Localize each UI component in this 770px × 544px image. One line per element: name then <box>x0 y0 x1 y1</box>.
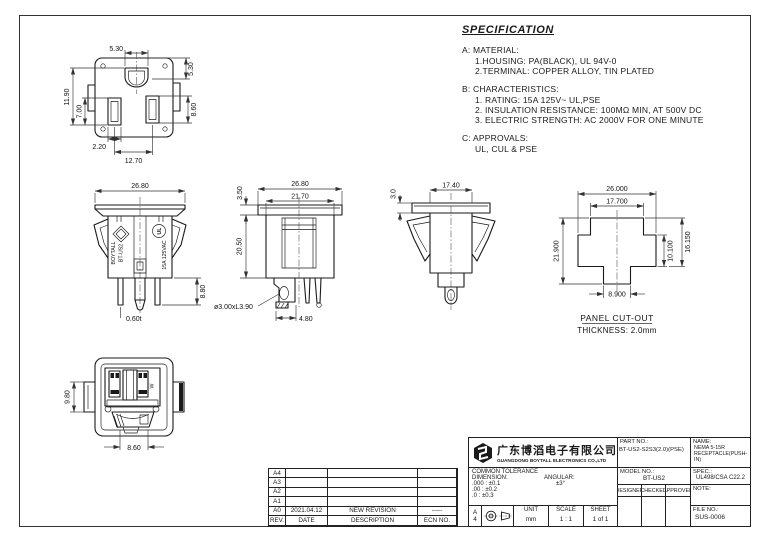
scale-cell: SCALE 1 : 1 <box>548 505 584 527</box>
rev-header: DESCRIPTION <box>328 516 418 526</box>
dim-label: ø3.00xL3.90 <box>214 304 253 311</box>
dim-label: 17.40 <box>442 183 460 190</box>
wiring-mark-w: W <box>150 383 156 388</box>
name-label: NAME: <box>691 438 750 445</box>
rev-cell <box>418 469 457 478</box>
dim-label: 3.50 <box>237 186 244 200</box>
spec-section-approvals: C: APPROVALS: UL, CUL & PSE <box>462 133 754 154</box>
rev-cell <box>418 497 457 506</box>
model-mark: BT-US2 <box>119 244 125 262</box>
part-no-label: PART NO.: <box>618 438 690 445</box>
view-side2-drawing: 17.40 3.0 <box>385 175 530 340</box>
rev-cell <box>418 488 457 497</box>
ul-mark: UL <box>157 227 163 235</box>
angular-value: ±3° <box>544 481 565 487</box>
dim-label: 12.70 <box>125 158 143 165</box>
rev-cell-ecn: ----- <box>418 507 457 516</box>
paper-size-letter: A <box>473 509 477 516</box>
rev-cell <box>418 478 457 487</box>
rev-cell-description: NEW REVISION <box>328 507 418 516</box>
front-outline <box>94 197 186 313</box>
drawing-sheet: 5.30 5.30 11.90 7.00 8.60 2.20 12.70 <box>0 0 770 544</box>
dim-label: 21.70 <box>291 194 309 201</box>
dim-label: 26.000 <box>606 186 628 193</box>
dim-label: 8.60 <box>191 103 198 117</box>
dim-label: 0.60t <box>126 316 142 323</box>
designer-signature-cell <box>617 496 642 527</box>
tolerance-cell: COMMON TOLERANCE DIMENSION: ANGULAR: .00… <box>468 467 618 506</box>
approved-label: APPROVED <box>665 488 691 494</box>
rev-cell: A1 <box>269 497 286 506</box>
name-line2: RECEPTACLE(PUSH-IN) <box>691 451 750 463</box>
spec-label: SPEC.: <box>691 468 750 475</box>
file-no-value: SUS-0006 <box>691 513 750 521</box>
dim-label: 3.0 <box>391 189 398 199</box>
view-face-drawing: 5.30 5.30 11.90 7.00 8.60 2.20 12.70 <box>40 22 230 174</box>
tolerance-row: .0 : ±0.3 <box>472 493 614 499</box>
rev-cell: A0 <box>269 507 286 516</box>
dim-label: 26.80 <box>291 181 309 188</box>
file-no-label: FILE NO.: <box>691 506 750 513</box>
rev-cell: A3 <box>269 478 286 487</box>
dim-label: 5.30 <box>109 46 123 53</box>
rev-cell <box>286 478 328 487</box>
checked-label: CHECKED <box>641 488 666 494</box>
rev-cell <box>286 488 328 497</box>
scale-value: 1 : 1 <box>549 513 583 523</box>
dim-label: 4.80 <box>299 316 313 323</box>
revision-table: A4 A3 A2 A1 A0 2021.04.12 NEW REVISION -… <box>268 468 458 527</box>
rev-header: DATE <box>286 516 328 526</box>
spec-item: 1. RATING: 15A 125V~ UL,PSE <box>462 95 754 105</box>
dim-label: 16.150 <box>685 231 692 253</box>
spec-section-characteristics: B: CHARACTERISTICS: 1. RATING: 15A 125V~… <box>462 84 754 125</box>
rev-cell: A4 <box>269 469 286 478</box>
spec-section-material: A: MATERIAL: 1.HOUSING: PA(BLACK), UL 94… <box>462 45 754 76</box>
scale-label: SCALE <box>549 506 583 513</box>
face-dimensions: 5.30 5.30 11.90 7.00 8.60 2.20 12.70 <box>64 46 198 165</box>
dim-label: 11.90 <box>64 88 71 105</box>
checked-signature-cell <box>641 496 666 527</box>
side2-outline <box>407 193 495 310</box>
rev-cell <box>286 469 328 478</box>
company-cell: 广东博滔电子有限公司 GUANGDONG BOYTALL ELECTRONICS… <box>468 437 618 468</box>
dim-label: 21.900 <box>554 240 561 262</box>
side2-dimensions: 17.40 3.0 <box>391 183 473 222</box>
rev-header: ECN NO. <box>418 516 457 526</box>
side-outline <box>258 197 342 308</box>
cutout-caption: PANEL CUT-OUT THICKNESS: 2.0mm <box>577 313 657 335</box>
rev-cell <box>328 488 418 497</box>
front-markings: UL BOYTALL BT-US2 15A 125VAC <box>111 225 168 270</box>
rev-cell <box>286 497 328 506</box>
rev-header: REV. <box>269 516 286 526</box>
company-logo-icon <box>472 442 494 464</box>
part-no-value: BT-US2-S2S3(2.0)(PSE) <box>618 445 690 453</box>
view-back-drawing: W 9.80 8.60 <box>50 342 205 467</box>
spec-cell: SPEC.: UL498/CSA C22.2 <box>690 467 751 485</box>
cutout-title: PANEL CUT-OUT <box>580 313 654 323</box>
paper-size-cell: A 4 <box>468 505 482 527</box>
spec-item: 3. ELECTRIC STRENGTH: AC 2000V FOR ONE M… <box>462 115 754 125</box>
dim-label: 8.60 <box>127 445 141 452</box>
dim-label: 10.100 <box>668 240 675 262</box>
rev-cell: A2 <box>269 488 286 497</box>
spec-item: 1.HOUSING: PA(BLACK), UL 94V-0 <box>462 56 754 66</box>
cutout-thickness: THICKNESS: 2.0mm <box>577 326 657 335</box>
spec-item: 2. INSULATION RESISTANCE: 100MΩ MIN, AT … <box>462 105 754 115</box>
sheet-label: SHEET <box>584 506 617 513</box>
company-name-cn: 广东博滔电子有限公司 <box>497 442 617 458</box>
spec-item: 2.TERMINAL: COPPER ALLOY, TIN PLATED <box>462 66 754 76</box>
designer-label: DESIGNER <box>617 488 642 494</box>
dim-label: 9.80 <box>65 390 72 404</box>
view-front-drawing: UL BOYTALL BT-US2 15A 125VAC 26.80 8.80 … <box>55 175 215 337</box>
model-no-label: MODEL NO.: <box>618 468 690 475</box>
cutout-outline <box>578 210 656 292</box>
face-outline <box>88 52 180 137</box>
cutout-dimensions: 26.000 17.700 21.900 10.100 16.150 8.900 <box>554 186 693 299</box>
note-cell: NOTE: <box>690 484 751 506</box>
title-block: 广东博滔电子有限公司 GUANGDONG BOYTALL ELECTRONICS… <box>468 437 751 527</box>
model-no-cell: MODEL NO.: BT-US2 <box>617 467 691 485</box>
unit-label: UNIT <box>514 506 548 513</box>
paper-size-number: 4 <box>473 516 477 523</box>
dim-label: 20.50 <box>237 238 244 256</box>
file-no-cell: FILE NO.: SUS-0006 <box>690 505 751 527</box>
spec-section-label: C: APPROVALS: <box>462 133 754 143</box>
specification-block: SPECIFICATION A: MATERIAL: 1.HOUSING: PA… <box>462 24 754 154</box>
approved-signature-cell <box>665 496 691 527</box>
view-cutout-drawing: 26.000 17.700 21.900 10.100 16.150 8.900 <box>545 175 750 345</box>
dim-label: 7.00 <box>77 105 84 119</box>
spec-item: UL, CUL & PSE <box>462 144 754 154</box>
dim-label: 17.700 <box>606 199 628 206</box>
rev-cell-date: 2021.04.12 <box>286 507 328 516</box>
dim-label: 2.20 <box>92 144 106 151</box>
rev-cell <box>328 478 418 487</box>
dim-label: 26.80 <box>131 183 149 190</box>
dim-label: 5.30 <box>188 62 195 76</box>
company-name-en: GUANGDONG BOYTALL ELECTRONICS CO.,LTD <box>497 458 617 463</box>
view-side-drawing: 26.80 21.70 3.50 20.50 ø3.00xL3.90 4.80 <box>212 175 380 343</box>
name-cell: NAME: NEMA 5-15R RECEPTACLE(PUSH-IN) <box>690 437 751 468</box>
sheet-cell: SHEET 1 of 1 <box>583 505 618 527</box>
model-no-value: BT-US2 <box>618 475 690 482</box>
rev-cell <box>328 497 418 506</box>
spec-value: UL498/CSA C22.2 <box>691 475 750 481</box>
rating-mark: 15A 125VAC <box>162 240 168 270</box>
projection-symbol-cell <box>481 505 514 527</box>
specification-title: SPECIFICATION <box>462 24 754 36</box>
third-angle-projection-icon <box>484 508 512 524</box>
part-no-cell: PART NO.: BT-US2-S2S3(2.0)(PSE) <box>617 437 691 468</box>
rev-cell <box>328 469 418 478</box>
brand-mark: BOYTALL <box>111 241 117 264</box>
unit-cell: UNIT mm <box>513 505 549 527</box>
spec-section-label: A: MATERIAL: <box>462 45 754 55</box>
sheet-value: 1 of 1 <box>584 513 617 523</box>
dim-label: 8.80 <box>200 285 207 299</box>
unit-value: mm <box>514 513 548 523</box>
back-outline: W <box>84 358 184 436</box>
spec-section-label: B: CHARACTERISTICS: <box>462 84 754 94</box>
note-label: NOTE: <box>691 485 750 492</box>
dim-label: 8.900 <box>608 292 626 299</box>
